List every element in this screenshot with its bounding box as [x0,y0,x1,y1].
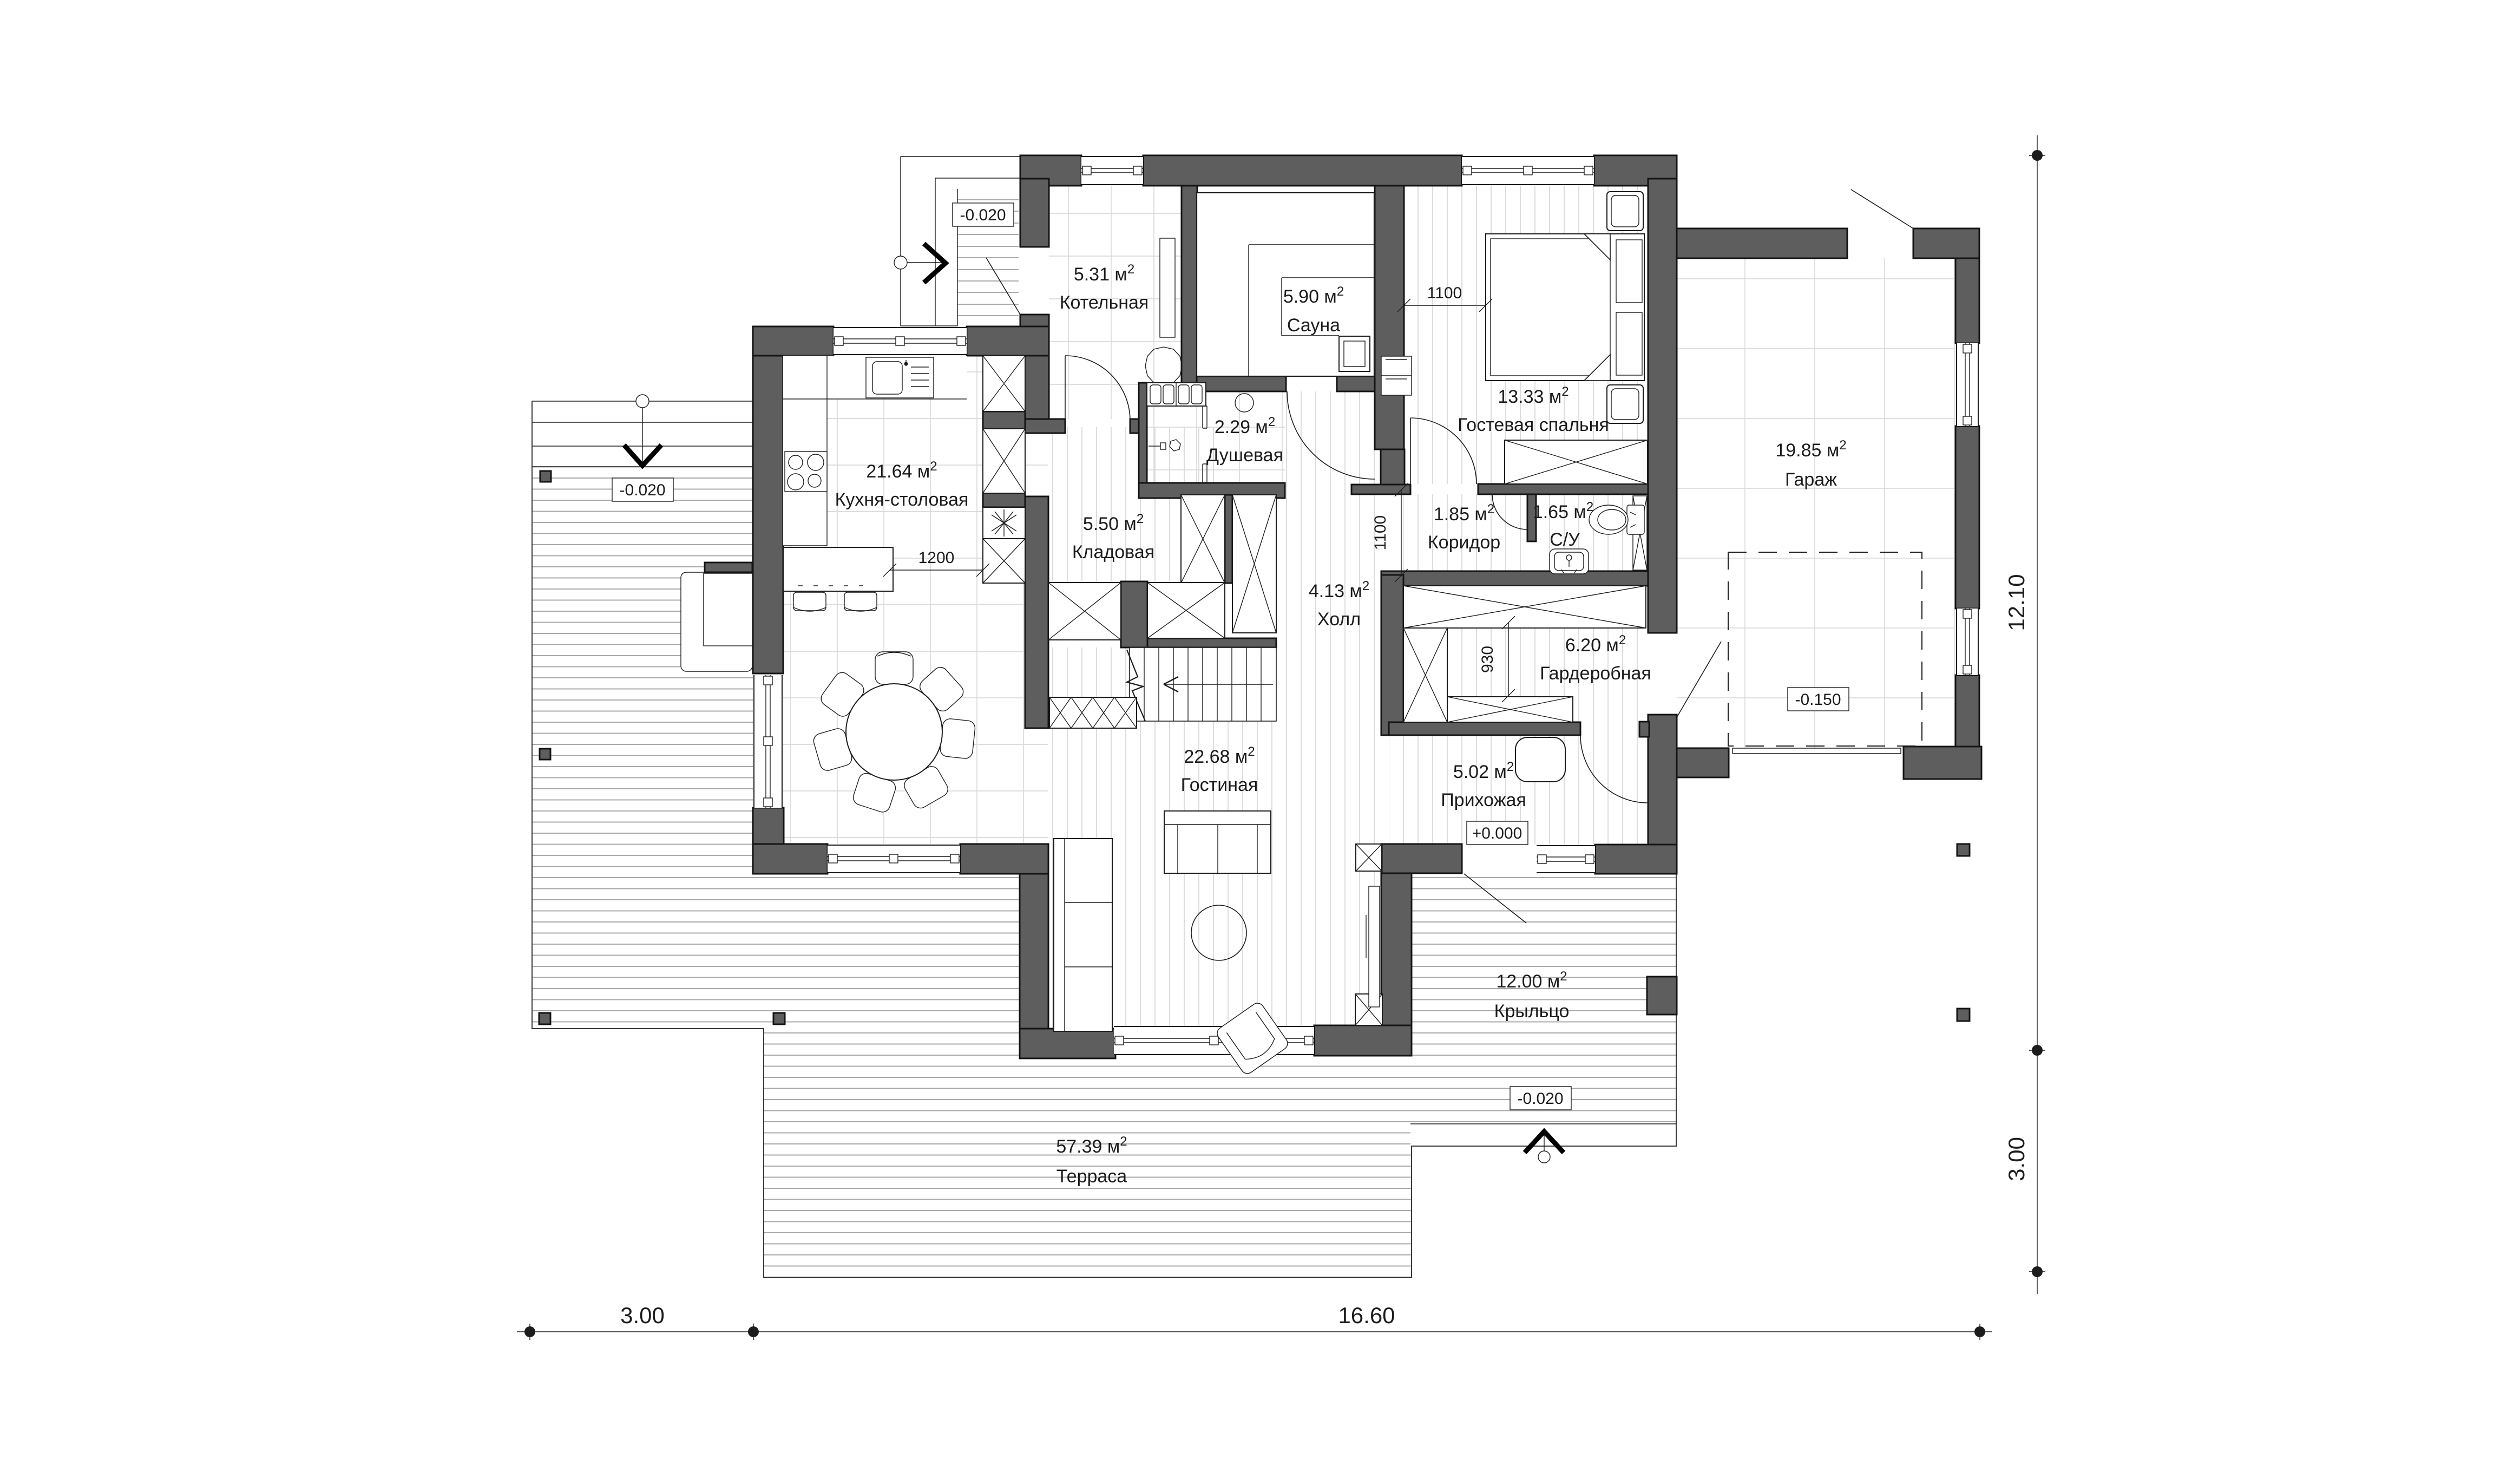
svg-text:12.10: 12.10 [2004,574,2029,631]
svg-text:1200: 1200 [918,549,955,567]
svg-text:Гостевая спальня: Гостевая спальня [1458,415,1609,435]
svg-text:3.00: 3.00 [2004,1137,2029,1181]
svg-text:22.68 м2: 22.68 м2 [1184,744,1255,767]
svg-text:Кухня-столовая: Кухня-столовая [835,489,969,510]
svg-text:Котельная: Котельная [1060,292,1149,313]
svg-text:Сауна: Сауна [1287,315,1340,336]
svg-text:Холл: Холл [1317,609,1361,630]
svg-text:Гараж: Гараж [1785,469,1837,490]
svg-text:-0.150: -0.150 [1795,691,1841,709]
svg-text:21.64 м2: 21.64 м2 [866,459,937,482]
svg-text:Крыльцо: Крыльцо [1494,1001,1570,1022]
svg-text:Кладовая: Кладовая [1072,542,1154,562]
svg-text:-0.020: -0.020 [1517,1090,1563,1108]
svg-text:19.85 м2: 19.85 м2 [1775,438,1846,461]
svg-text:Гостиная: Гостиная [1181,775,1258,795]
svg-text:1100: 1100 [1427,284,1462,302]
svg-text:3.00: 3.00 [620,1303,665,1328]
svg-text:1.65 м2: 1.65 м2 [1533,500,1593,522]
svg-text:+0.000: +0.000 [1472,825,1522,842]
svg-text:4.13 м2: 4.13 м2 [1309,579,1369,601]
svg-text:-0.020: -0.020 [960,206,1006,224]
svg-text:2.29 м2: 2.29 м2 [1215,415,1275,437]
svg-text:5.31 м2: 5.31 м2 [1074,262,1134,285]
svg-text:-0.020: -0.020 [619,481,665,499]
svg-text:6.20 м2: 6.20 м2 [1565,633,1626,656]
svg-text:Прихожая: Прихожая [1441,790,1526,810]
svg-text:Коридор: Коридор [1428,532,1500,553]
svg-text:Гардеробная: Гардеробная [1540,663,1651,684]
svg-text:Терраса: Терраса [1056,1166,1127,1187]
svg-text:Душевая: Душевая [1206,445,1283,466]
svg-text:1.85 м2: 1.85 м2 [1434,502,1494,525]
svg-text:1100: 1100 [1371,515,1389,551]
svg-text:13.33 м2: 13.33 м2 [1498,384,1569,407]
svg-text:5.50 м2: 5.50 м2 [1083,512,1144,534]
svg-text:С/У: С/У [1550,529,1580,550]
svg-text:5.02 м2: 5.02 м2 [1453,760,1514,782]
svg-text:57.39 м2: 57.39 м2 [1056,1134,1127,1157]
svg-text:930: 930 [1479,646,1497,673]
svg-text:12.00 м2: 12.00 м2 [1496,969,1567,992]
svg-text:16.60: 16.60 [1338,1303,1395,1328]
svg-text:5.90 м2: 5.90 м2 [1283,284,1344,307]
